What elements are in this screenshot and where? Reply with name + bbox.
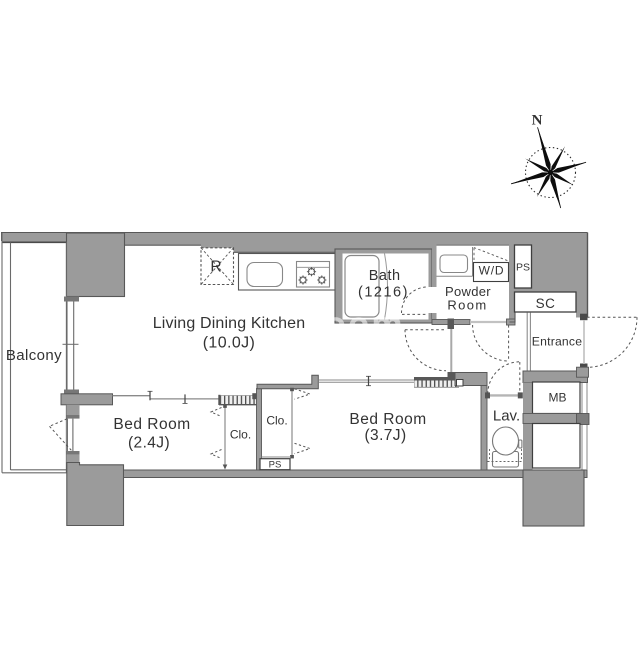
- svg-text:(10.0J): (10.0J): [203, 335, 256, 352]
- svg-text:R: R: [210, 259, 221, 276]
- svg-text:N: N: [532, 113, 543, 129]
- svg-text:MB: MB: [549, 391, 567, 405]
- svg-text:room: room: [309, 305, 405, 344]
- svg-text:Balcony: Balcony: [6, 347, 62, 364]
- svg-text:Bed Room: Bed Room: [113, 416, 190, 433]
- svg-text:Clo.: Clo.: [266, 414, 287, 428]
- svg-text:Bed Room: Bed Room: [349, 411, 426, 428]
- svg-text:W/D: W/D: [479, 264, 505, 278]
- svg-text:Entrance: Entrance: [532, 335, 582, 349]
- svg-text:Living Dining Kitchen: Living Dining Kitchen: [153, 315, 306, 332]
- svg-text:(1216): (1216): [358, 285, 409, 301]
- svg-text:Clo.: Clo.: [230, 428, 251, 442]
- svg-text:Bath: Bath: [369, 268, 401, 284]
- svg-text:PS: PS: [269, 460, 282, 471]
- svg-text:SC: SC: [536, 296, 556, 311]
- svg-text:(3.7J): (3.7J): [364, 427, 406, 444]
- svg-text:Room: Room: [447, 298, 487, 313]
- svg-text:PS: PS: [516, 262, 530, 274]
- svg-text:(2.4J): (2.4J): [128, 435, 170, 452]
- svg-text:Lav.: Lav.: [493, 408, 520, 425]
